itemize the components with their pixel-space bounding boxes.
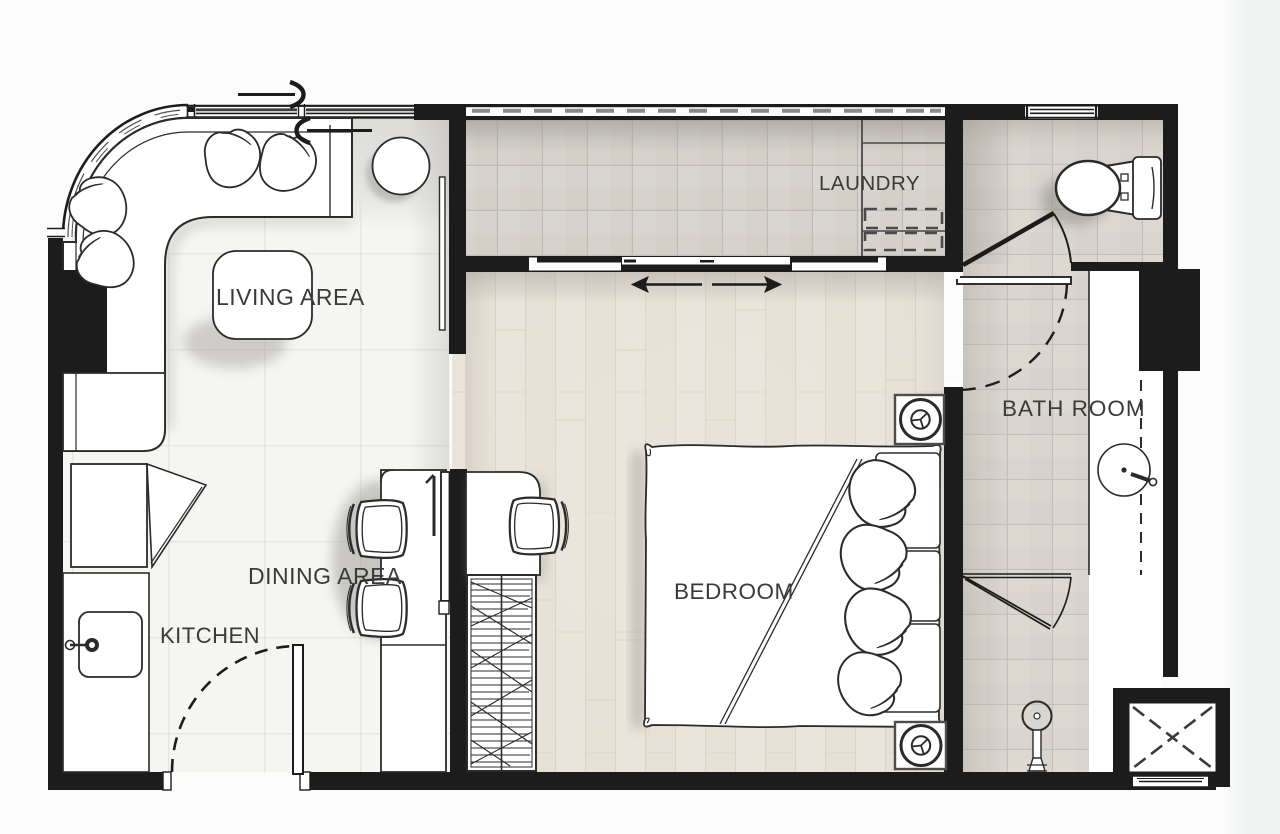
- svg-text:BEDROOM: BEDROOM: [674, 579, 794, 604]
- svg-text:KITCHEN: KITCHEN: [160, 623, 260, 648]
- svg-text:DINING AREA: DINING AREA: [248, 563, 402, 589]
- svg-text:LAUNDRY: LAUNDRY: [819, 172, 920, 195]
- svg-text:LIVING AREA: LIVING AREA: [216, 284, 365, 310]
- svg-text:BATH ROOM: BATH ROOM: [1002, 396, 1146, 421]
